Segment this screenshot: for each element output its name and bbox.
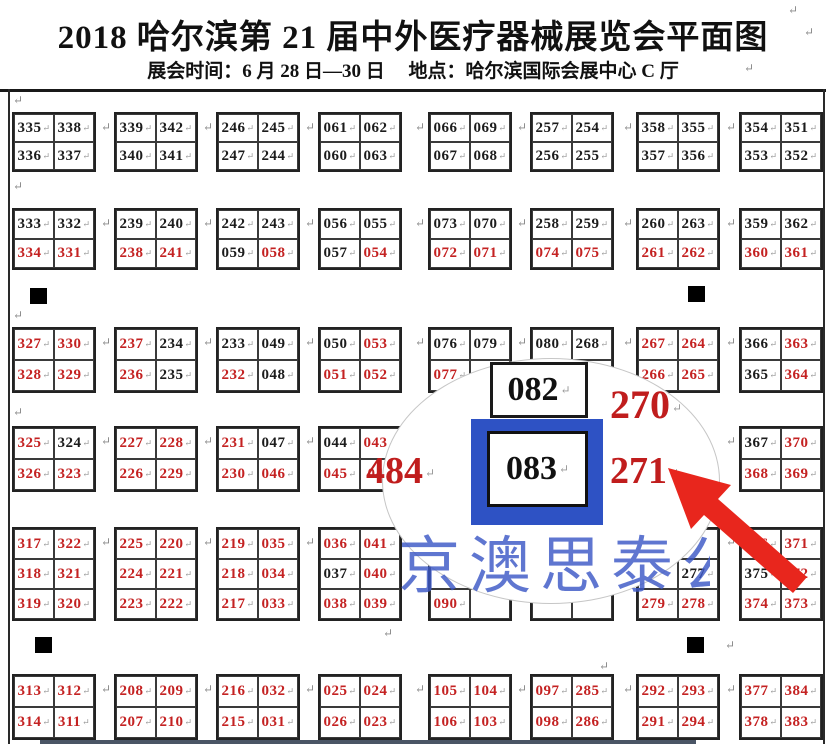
- booth-number: 103: [473, 715, 506, 730]
- booth-cell: 210: [156, 707, 196, 738]
- booth-cell: 327: [14, 329, 54, 360]
- booth-block: 258259074075: [530, 208, 614, 270]
- return-mark: ↵: [305, 121, 315, 133]
- booth-cell: 047: [258, 428, 298, 459]
- booth-cell: 374: [741, 589, 781, 619]
- booth-cell: 286: [572, 707, 612, 738]
- booth-cell: 073: [430, 210, 470, 239]
- return-mark: ↵: [101, 536, 111, 548]
- booth-number: 373: [784, 597, 817, 612]
- booth-cell: 318: [14, 559, 54, 589]
- booth-cell: 238: [116, 239, 156, 268]
- booth-number: 254: [575, 121, 608, 136]
- booth-cell: 313: [14, 676, 54, 707]
- booth-cell: 058: [258, 239, 298, 268]
- booth-cell: 052: [360, 360, 400, 391]
- booth-number: 360: [744, 246, 777, 261]
- return-mark: ↵: [672, 401, 682, 415]
- booth-cell: 232: [218, 360, 258, 391]
- booth-cell: 032: [258, 676, 298, 707]
- booth-number: 076: [433, 337, 466, 352]
- booth-cell: 329: [54, 360, 94, 391]
- booth-number: 353: [744, 149, 777, 164]
- booth-cell: 069: [470, 114, 510, 142]
- booth-cell: 103: [470, 707, 510, 738]
- booth-cell: 241: [156, 239, 196, 268]
- booth-number: 355: [681, 121, 714, 136]
- booth-cell: 068: [470, 142, 510, 170]
- booth-cell: 230: [218, 459, 258, 490]
- booth-number: 323: [57, 467, 90, 482]
- booth-block: 242243059058: [216, 208, 300, 270]
- booth-number: 264: [681, 337, 714, 352]
- booth-cell: 325: [14, 428, 54, 459]
- booth-number: 383: [784, 715, 817, 730]
- booth-cell: 260: [638, 210, 678, 239]
- booth-cell: 341: [156, 142, 196, 170]
- booth-number: 208: [119, 684, 152, 699]
- booth-cell: 254: [572, 114, 612, 142]
- booth-number: 337: [57, 149, 90, 164]
- page-title: 2018 哈尔滨第 21 届中外医疗器械展览会平面图: [0, 10, 826, 58]
- booth-block: 335338336337: [12, 112, 96, 172]
- booth-block: 036041037040038039: [318, 527, 402, 621]
- return-mark: ↵: [804, 26, 814, 38]
- return-mark: ↵: [517, 217, 527, 229]
- booth-cell: 358: [638, 114, 678, 142]
- return-mark: ↵: [788, 4, 798, 16]
- booth-number: 359: [744, 217, 777, 232]
- booth-cell: 070: [470, 210, 510, 239]
- booth-number: 219: [221, 537, 254, 552]
- return-mark: ↵: [203, 217, 213, 229]
- booth-number: 267: [641, 337, 674, 352]
- booth-cell: 037: [320, 559, 360, 589]
- magnified-booth-271: 271↵: [610, 452, 679, 490]
- booth-number: 362: [784, 217, 817, 232]
- return-mark: ↵: [517, 121, 527, 133]
- booth-cell: 225: [116, 529, 156, 559]
- booth-number: 068: [473, 149, 506, 164]
- booth-block: 061062060063: [318, 112, 402, 172]
- booth-block: 227228226229: [114, 426, 198, 492]
- booth-number: 377: [744, 684, 777, 699]
- booth-cell: 370: [781, 428, 821, 459]
- booth-cell: 071: [470, 239, 510, 268]
- booth-block: 257254256255: [530, 112, 614, 172]
- booth-cell: 373: [781, 589, 821, 619]
- booth-number: 325: [17, 436, 50, 451]
- booth-number: 322: [57, 537, 90, 552]
- booth-number: 375: [744, 567, 777, 582]
- booth-number: 257: [535, 121, 568, 136]
- booth-block: 231047230046: [216, 426, 300, 492]
- booth-number: 336: [17, 149, 50, 164]
- booth-block: 105104106103: [428, 674, 512, 740]
- booth-block: 376371375372374373: [739, 527, 823, 621]
- return-mark: ↵: [415, 217, 425, 229]
- booth-cell: 294: [678, 707, 718, 738]
- booth-number: 342: [159, 121, 192, 136]
- booth-number: 363: [784, 337, 817, 352]
- booth-cell: 055: [360, 210, 400, 239]
- booth-cell: 360: [741, 239, 781, 268]
- booth-cell: 262: [678, 239, 718, 268]
- booth-number: 330: [57, 337, 90, 352]
- booth-cell: 098: [532, 707, 572, 738]
- booth-cell: 105: [430, 676, 470, 707]
- booth-cell: 053: [360, 329, 400, 360]
- booth-cell: 061: [320, 114, 360, 142]
- booth-cell: 239: [116, 210, 156, 239]
- booth-number: 329: [57, 368, 90, 383]
- return-mark: ↵: [203, 536, 213, 548]
- booth-cell: 059: [218, 239, 258, 268]
- booth-number: 366: [744, 337, 777, 352]
- booth-cell: 367: [741, 428, 781, 459]
- floor-plan-page: 2018 哈尔滨第 21 届中外医疗器械展览会平面图 展会时间：6 月 28 日…: [0, 0, 826, 744]
- booth-number: 374: [744, 597, 777, 612]
- return-mark: ↵: [726, 536, 736, 548]
- booth-number: 041: [363, 537, 396, 552]
- booth-cell: 056: [320, 210, 360, 239]
- booth-cell: 050: [320, 329, 360, 360]
- booth-cell: 246: [218, 114, 258, 142]
- return-mark: ↵: [101, 435, 111, 447]
- booth-number: 031: [261, 715, 294, 730]
- booth-number: 384: [784, 684, 817, 699]
- booth-number: 261: [641, 246, 674, 261]
- booth-cell: 335: [14, 114, 54, 142]
- return-mark: ↵: [726, 121, 736, 133]
- booth-cell: 227: [116, 428, 156, 459]
- booth-block: 358355357356: [636, 112, 720, 172]
- booth-cell: 217: [218, 589, 258, 619]
- booth-number: 376: [744, 537, 777, 552]
- booth-number: 340: [119, 149, 152, 164]
- booth-cell: 326: [14, 459, 54, 490]
- booth-cell: 376: [741, 529, 781, 559]
- booth-number: 038: [323, 597, 356, 612]
- booth-block: 377384378383: [739, 674, 823, 740]
- booth-number: 218: [221, 567, 254, 582]
- return-mark: ↵: [744, 62, 754, 74]
- booth-number: 228: [159, 436, 192, 451]
- booth-cell: 036: [320, 529, 360, 559]
- booth-cell: 062: [360, 114, 400, 142]
- booth-number: 035: [261, 537, 294, 552]
- booth-number: 318: [17, 567, 50, 582]
- return-mark: ↵: [623, 217, 633, 229]
- booth-cell: 265: [678, 360, 718, 391]
- booth-cell: 293: [678, 676, 718, 707]
- booth-cell: 063: [360, 142, 400, 170]
- return-mark: ↵: [623, 121, 633, 133]
- booth-block: 327330328329: [12, 327, 96, 393]
- return-mark: ↵: [425, 466, 435, 480]
- booth-number: 259: [575, 217, 608, 232]
- booth-cell: 259: [572, 210, 612, 239]
- return-mark: ↵: [726, 217, 736, 229]
- booth-number: 321: [57, 567, 90, 582]
- booth-number: 026: [323, 715, 356, 730]
- booth-cell: 340: [116, 142, 156, 170]
- return-mark: ↵: [669, 466, 679, 480]
- booth-block: 066069067068: [428, 112, 512, 172]
- booth-cell: 339: [116, 114, 156, 142]
- return-mark: ↵: [725, 639, 735, 651]
- booth-cell: 312: [54, 676, 94, 707]
- booth-cell: 364: [781, 360, 821, 391]
- booth-number: 335: [17, 121, 50, 136]
- booth-number: 222: [159, 597, 192, 612]
- booth-number: 369: [784, 467, 817, 482]
- booth-block: 225220224221223222: [114, 527, 198, 621]
- booth-cell: 263: [678, 210, 718, 239]
- return-mark: ↵: [560, 383, 570, 398]
- booth-cell: 218: [218, 559, 258, 589]
- booth-block: 237234236235: [114, 327, 198, 393]
- booth-cell: 337: [54, 142, 94, 170]
- booth-cell: 023: [360, 707, 400, 738]
- booth-number: 236: [119, 368, 152, 383]
- bottom-row-edge: [40, 740, 696, 744]
- booth-number: 106: [433, 715, 466, 730]
- booth-number: 243: [261, 217, 294, 232]
- booth-cell: 215: [218, 707, 258, 738]
- booth-cell: 353: [741, 142, 781, 170]
- booth-number: 292: [641, 684, 674, 699]
- booth-cell: 362: [781, 210, 821, 239]
- return-mark: ↵: [517, 683, 527, 695]
- booth-block: 325324326323: [12, 426, 96, 492]
- booth-number: 215: [221, 715, 254, 730]
- booth-number: 313: [17, 684, 50, 699]
- booth-number: 098: [535, 715, 568, 730]
- booth-cell: 207: [116, 707, 156, 738]
- booth-number: 067: [433, 149, 466, 164]
- booth-cell: 075: [572, 239, 612, 268]
- booth-number: 258: [535, 217, 568, 232]
- booth-number: 233: [221, 337, 254, 352]
- booth-cell: 322: [54, 529, 94, 559]
- return-mark: ↵: [623, 336, 633, 348]
- booth-number: 238: [119, 246, 152, 261]
- booth-cell: 356: [678, 142, 718, 170]
- booth-block: 246245247244: [216, 112, 300, 172]
- booth-number: 227: [119, 436, 152, 451]
- magnified-booth-partial: 484↵: [366, 452, 435, 490]
- booth-number: 104: [473, 684, 506, 699]
- booth-number: 062: [363, 121, 396, 136]
- booth-cell: 371: [781, 529, 821, 559]
- booth-number: 058: [261, 246, 294, 261]
- return-mark: ↵: [726, 683, 736, 695]
- booth-cell: 317: [14, 529, 54, 559]
- booth-cell: 384: [781, 676, 821, 707]
- booth-number: 032: [261, 684, 294, 699]
- booth-number: 285: [575, 684, 608, 699]
- booth-cell: 236: [116, 360, 156, 391]
- booth-cell: 366: [741, 329, 781, 360]
- booth-number: 244: [261, 149, 294, 164]
- return-mark: ↵: [101, 336, 111, 348]
- booth-cell: 352: [781, 142, 821, 170]
- booth-number: 240: [159, 217, 192, 232]
- booth-cell: 311: [54, 707, 94, 738]
- magnified-booth-083: 083↵: [487, 431, 588, 507]
- booth-number: 356: [681, 149, 714, 164]
- magnified-booth-270: 270↵: [610, 385, 682, 425]
- booth-cell: 355: [678, 114, 718, 142]
- booth-number: 229: [159, 467, 192, 482]
- booth-number: 063: [363, 149, 396, 164]
- booth-number: 059: [221, 246, 254, 261]
- booth-cell: 247: [218, 142, 258, 170]
- booth-number: 216: [221, 684, 254, 699]
- booth-cell: 097: [532, 676, 572, 707]
- booth-number: 071: [473, 246, 506, 261]
- booth-number: 048: [261, 368, 294, 383]
- booth-number: 262: [681, 246, 714, 261]
- booth-number: 023: [363, 715, 396, 730]
- booth-cell: 314: [14, 707, 54, 738]
- return-mark: ↵: [415, 121, 425, 133]
- booth-cell: 330: [54, 329, 94, 360]
- booth-block: 056055057054: [318, 208, 402, 270]
- return-mark: ↵: [13, 180, 23, 192]
- booth-block: 354351353352: [739, 112, 823, 172]
- booth-cell: 336: [14, 142, 54, 170]
- return-mark: ↵: [305, 536, 315, 548]
- booth-cell: 034: [258, 559, 298, 589]
- column-marker: [30, 288, 47, 304]
- booth-block: 073070072071: [428, 208, 512, 270]
- return-mark: ↵: [13, 94, 23, 106]
- booth-cell: 359: [741, 210, 781, 239]
- booth-number: 338: [57, 121, 90, 136]
- booth-number: 293: [681, 684, 714, 699]
- booth-cell: 291: [638, 707, 678, 738]
- booth-cell: 226: [116, 459, 156, 490]
- booth-number: 239: [119, 217, 152, 232]
- booth-number: 364: [784, 368, 817, 383]
- booth-block: 367370368369: [739, 426, 823, 492]
- return-mark: ↵: [203, 336, 213, 348]
- booth-cell: 320: [54, 589, 94, 619]
- booth-cell: 106: [430, 707, 470, 738]
- booth-cell: 044: [320, 428, 360, 459]
- booth-number: 241: [159, 246, 192, 261]
- booth-cell: 365: [741, 360, 781, 391]
- booth-number: 247: [221, 149, 254, 164]
- booth-number: 044: [323, 436, 356, 451]
- booth-cell: 319: [14, 589, 54, 619]
- booth-number: 054: [363, 246, 396, 261]
- booth-number: 080: [535, 337, 568, 352]
- booth-cell: 060: [320, 142, 360, 170]
- booth-cell: 375: [741, 559, 781, 589]
- booth-number: 040: [363, 567, 396, 582]
- page-subtitle: 展会时间：6 月 28 日—30 日 地点：哈尔滨国际会展中心 C 厅: [0, 56, 826, 83]
- booth-number: 075: [575, 246, 608, 261]
- booth-number: 255: [575, 149, 608, 164]
- booth-cell: 079: [470, 329, 510, 360]
- booth-cell: 234: [156, 329, 196, 360]
- booth-number: 051: [323, 368, 356, 383]
- booth-number: 265: [681, 368, 714, 383]
- booth-cell: 046: [258, 459, 298, 490]
- booth-block: 219035218034217033: [216, 527, 300, 621]
- return-mark: ↵: [203, 121, 213, 133]
- map-border-right: [823, 89, 825, 744]
- return-mark: ↵: [305, 217, 315, 229]
- return-mark: ↵: [101, 217, 111, 229]
- booth-number: 037: [323, 567, 356, 582]
- booth-number: 073: [433, 217, 466, 232]
- booth-cell: 267: [638, 329, 678, 360]
- booth-number: 039: [363, 597, 396, 612]
- booth-block: 208209207210: [114, 674, 198, 740]
- booth-number: 060: [323, 149, 356, 164]
- booth-cell: 024: [360, 676, 400, 707]
- booth-cell: 229: [156, 459, 196, 490]
- booth-number: 055: [363, 217, 396, 232]
- booth-number: 210: [159, 715, 192, 730]
- booth-cell: 035: [258, 529, 298, 559]
- booth-cell: 328: [14, 360, 54, 391]
- booth-cell: 383: [781, 707, 821, 738]
- booth-cell: 067: [430, 142, 470, 170]
- booth-cell: 221: [156, 559, 196, 589]
- return-mark: ↵: [101, 121, 111, 133]
- booth-cell: 233: [218, 329, 258, 360]
- booth-cell: 074: [532, 239, 572, 268]
- booth-cell: 031: [258, 707, 298, 738]
- booth-cell: 321: [54, 559, 94, 589]
- booth-number: 033: [261, 597, 294, 612]
- booth-number: 057: [323, 246, 356, 261]
- booth-number: 036: [323, 537, 356, 552]
- booth-number: 066: [433, 121, 466, 136]
- booth-cell: 066: [430, 114, 470, 142]
- booth-number: 365: [744, 368, 777, 383]
- booth-number: 334: [17, 246, 50, 261]
- booth-number: 245: [261, 121, 294, 136]
- booth-number: 361: [784, 246, 817, 261]
- booth-block: 292293291294: [636, 674, 720, 740]
- booth-number: 317: [17, 537, 50, 552]
- booth-cell: 285: [572, 676, 612, 707]
- booth-cell: 072: [430, 239, 470, 268]
- booth-number: 097: [535, 684, 568, 699]
- booth-cell: 255: [572, 142, 612, 170]
- return-mark: ↵: [305, 336, 315, 348]
- return-mark: ↵: [203, 683, 213, 695]
- booth-cell: 235: [156, 360, 196, 391]
- booth-number: 328: [17, 368, 50, 383]
- return-mark: ↵: [101, 683, 111, 695]
- booth-number: 046: [261, 467, 294, 482]
- booth-number: 333: [17, 217, 50, 232]
- booth-number: 319: [17, 597, 50, 612]
- booth-number: 223: [119, 597, 152, 612]
- booth-number: 326: [17, 467, 50, 482]
- booth-number: 049: [261, 337, 294, 352]
- booth-cell: 363: [781, 329, 821, 360]
- booth-cell: 338: [54, 114, 94, 142]
- booth-number: 357: [641, 149, 674, 164]
